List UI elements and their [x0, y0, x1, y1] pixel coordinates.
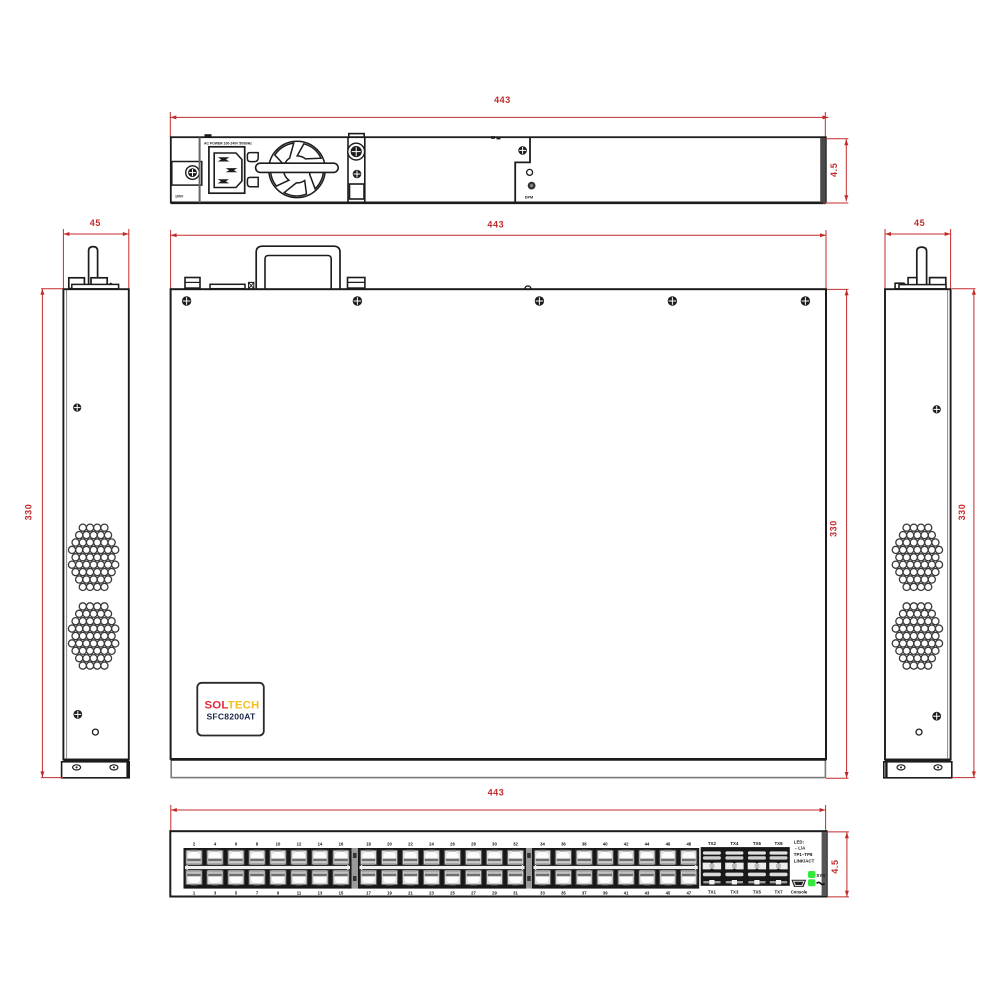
svg-text:TX8: TX8 [774, 841, 783, 846]
svg-text:4.5: 4.5 [830, 859, 840, 873]
svg-text:27: 27 [471, 891, 476, 896]
svg-text:LED:: LED: [794, 839, 805, 844]
svg-text:47: 47 [686, 891, 691, 896]
svg-text:18: 18 [366, 842, 371, 847]
svg-text:25: 25 [450, 891, 455, 896]
svg-text:443: 443 [494, 95, 511, 105]
svg-text:TX7: TX7 [774, 890, 783, 895]
svg-text:TP1~TP8: TP1~TP8 [794, 852, 813, 857]
svg-text:31: 31 [513, 891, 518, 896]
svg-text:36: 36 [561, 842, 566, 847]
svg-text:TX2: TX2 [708, 841, 717, 846]
svg-text:39: 39 [603, 891, 608, 896]
svg-text:12: 12 [297, 842, 302, 847]
svg-text:←L/A: ←L/A [794, 846, 806, 851]
svg-text:AC POWER 100-240V 50/60Hz: AC POWER 100-240V 50/60Hz [204, 142, 252, 146]
svg-text:20: 20 [387, 842, 392, 847]
svg-text:30: 30 [492, 842, 497, 847]
svg-text:38: 38 [582, 842, 587, 847]
svg-text:4.5: 4.5 [829, 163, 839, 177]
svg-text:41: 41 [624, 891, 629, 896]
svg-text:LINK/ACT: LINK/ACT [794, 858, 815, 863]
svg-text:29: 29 [492, 891, 497, 896]
svg-text:330: 330 [829, 520, 839, 537]
svg-text:443: 443 [487, 220, 504, 230]
svg-text:22: 22 [408, 842, 413, 847]
svg-text:17: 17 [366, 891, 371, 896]
svg-text:34: 34 [540, 842, 545, 847]
svg-text:45: 45 [666, 891, 671, 896]
svg-text:35: 35 [561, 891, 566, 896]
svg-text:28: 28 [471, 842, 476, 847]
svg-text:45: 45 [914, 218, 925, 228]
svg-text:24: 24 [429, 842, 434, 847]
svg-text:26: 26 [450, 842, 455, 847]
svg-text:32: 32 [513, 842, 518, 847]
svg-text:Console: Console [791, 889, 808, 894]
svg-text:19: 19 [387, 891, 392, 896]
svg-text:14: 14 [318, 842, 323, 847]
svg-text:TX3: TX3 [730, 890, 739, 895]
svg-text:330: 330 [957, 504, 967, 521]
svg-text:42: 42 [624, 842, 629, 847]
svg-text:TX4: TX4 [730, 841, 739, 846]
svg-text:443: 443 [488, 788, 505, 798]
svg-text:11: 11 [297, 891, 302, 896]
svg-text:330: 330 [24, 504, 34, 521]
svg-text:43: 43 [645, 891, 650, 896]
svg-text:TX5: TX5 [753, 890, 762, 895]
svg-text:44: 44 [645, 842, 650, 847]
svg-text:SOLTECH: SOLTECH [205, 700, 260, 712]
svg-text:13: 13 [318, 891, 323, 896]
svg-text:10: 10 [276, 842, 281, 847]
svg-text:37: 37 [582, 891, 587, 896]
svg-text:23: 23 [429, 891, 434, 896]
svg-text:21: 21 [408, 891, 413, 896]
svg-text:40: 40 [603, 842, 608, 847]
svg-text:48: 48 [686, 842, 691, 847]
svg-text:DPM: DPM [525, 195, 533, 199]
svg-text:SFC8200AT: SFC8200AT [207, 711, 256, 721]
svg-text:15: 15 [339, 891, 344, 896]
svg-text:16: 16 [339, 842, 344, 847]
svg-text:45: 45 [90, 218, 101, 228]
svg-text:100V: 100V [175, 195, 184, 199]
svg-text:TX6: TX6 [753, 841, 762, 846]
svg-text:SYS: SYS [816, 873, 825, 878]
svg-text:33: 33 [540, 891, 545, 896]
svg-text:TX1: TX1 [708, 890, 717, 895]
svg-text:46: 46 [666, 842, 671, 847]
